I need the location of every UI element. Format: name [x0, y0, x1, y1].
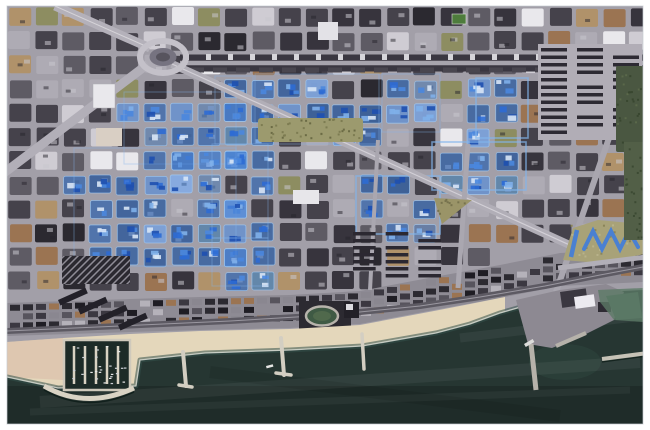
city-block [415, 33, 437, 51]
city-block [469, 224, 491, 242]
blue-roof [157, 129, 165, 134]
shore-building [543, 275, 553, 281]
courtyard [455, 91, 460, 94]
courtyard [66, 90, 71, 93]
city-block [172, 79, 194, 97]
blue-roof [149, 157, 154, 161]
courtyard [70, 251, 76, 255]
courtyard [338, 211, 343, 214]
blue-roof [152, 134, 158, 140]
shore-building [244, 307, 254, 313]
blue-roof [127, 226, 134, 232]
blue-roof [98, 229, 107, 232]
city-block [604, 9, 626, 27]
highlighted-block [199, 151, 221, 169]
shore-building [400, 293, 410, 299]
blue-roof [212, 178, 219, 181]
shore-building [504, 283, 514, 289]
blue-roof [261, 89, 267, 94]
courtyard [149, 83, 154, 86]
courtyard [391, 39, 396, 42]
blue-roof [504, 161, 509, 166]
city-block [36, 247, 58, 265]
city-block [62, 32, 84, 50]
city-block [332, 247, 354, 265]
city-block [37, 177, 59, 195]
courtyard [50, 236, 55, 239]
city-block [62, 79, 84, 97]
blue-roof [362, 179, 368, 184]
city-block [440, 81, 462, 99]
courtyard [206, 91, 212, 95]
photo-area [0, 6, 650, 424]
courtyard [346, 160, 351, 163]
document-page [0, 0, 650, 430]
blue-roof [101, 179, 107, 184]
blue-roof [471, 186, 479, 190]
shore-building [335, 294, 345, 300]
city-block [36, 105, 58, 123]
city-block [36, 80, 58, 98]
blue-roof [238, 108, 243, 112]
blue-roof [505, 88, 513, 93]
blue-roof [126, 185, 134, 190]
city-block [280, 223, 302, 241]
courtyard [610, 178, 615, 181]
courtyard [339, 258, 345, 262]
shore-building [426, 280, 436, 286]
shore-building [517, 281, 527, 287]
courtyard [282, 165, 288, 169]
city-block [35, 201, 57, 219]
blue-roof [102, 210, 107, 216]
blue-roof [183, 177, 188, 181]
shore-building [270, 297, 280, 303]
courtyard [585, 19, 590, 22]
courtyard [308, 228, 314, 232]
shore-building [153, 300, 163, 306]
city-block [198, 272, 220, 290]
courtyard [362, 158, 367, 161]
city-block [8, 201, 30, 219]
shore-building [361, 301, 371, 307]
shore-building [361, 292, 371, 298]
blue-roof [260, 113, 265, 118]
courtyard [504, 43, 509, 46]
blue-roof [496, 80, 501, 84]
blue-roof [200, 182, 206, 186]
blue-roof [469, 164, 475, 168]
city-block [361, 33, 383, 51]
city-block [413, 7, 435, 25]
shore-building [153, 309, 163, 315]
highlighted-block [468, 176, 490, 194]
blue-roof [417, 228, 422, 233]
highlighted-block [361, 175, 383, 193]
courtyard [174, 35, 180, 39]
courtyard [265, 17, 271, 21]
shore-building [244, 298, 254, 304]
blue-roof [453, 185, 459, 189]
city-block [333, 175, 355, 193]
city-block [279, 152, 301, 170]
city-block [10, 224, 32, 242]
courtyard [606, 163, 611, 166]
blue-roof [390, 82, 398, 88]
courtyard [474, 14, 480, 18]
city-block [8, 31, 30, 49]
blue-roof [206, 134, 213, 137]
city-block [467, 33, 489, 51]
courtyard [101, 68, 106, 71]
courtyard [237, 45, 243, 49]
courtyard [47, 228, 53, 232]
blue-roof [427, 106, 435, 110]
city-block [35, 31, 57, 49]
courtyard [176, 209, 182, 213]
blue-roof [389, 109, 394, 114]
shore-building [218, 298, 228, 304]
blue-roof [179, 136, 185, 139]
blue-roof [264, 82, 272, 86]
blue-roof [239, 276, 245, 281]
blue-roof [232, 81, 239, 86]
blue-roof [173, 156, 177, 161]
blue-roof [131, 208, 136, 212]
blue-roof [150, 182, 159, 185]
blue-roof [427, 85, 431, 91]
satellite-figure [0, 0, 650, 430]
city-block [35, 224, 57, 242]
blue-roof [505, 182, 513, 188]
city-block [334, 225, 356, 243]
blue-roof [256, 258, 260, 263]
blue-roof [97, 207, 104, 210]
shore-building [465, 272, 475, 278]
blue-roof [504, 80, 510, 83]
blue-roof [213, 250, 219, 256]
blue-roof [398, 87, 405, 91]
courtyard [288, 253, 294, 257]
courtyard [291, 214, 296, 217]
courtyard [77, 206, 82, 209]
shore-building [374, 289, 384, 295]
blue-roof [173, 232, 181, 238]
shore-building [166, 300, 176, 306]
shore-building [504, 274, 514, 280]
blue-roof [255, 251, 263, 256]
city-block [441, 104, 463, 122]
blue-roof [151, 251, 159, 255]
shore-building [439, 277, 449, 283]
city-block [332, 271, 354, 289]
blue-roof [394, 110, 399, 115]
shore-building [192, 308, 202, 314]
shore-building [400, 284, 410, 290]
courtyard [497, 17, 503, 21]
shore-building [257, 298, 267, 304]
blue-roof [204, 153, 208, 156]
blue-roof [124, 179, 131, 184]
courtyard [557, 211, 563, 215]
city-block [172, 7, 194, 25]
green-strip-2 [624, 142, 643, 240]
courtyard [619, 187, 625, 191]
blue-roof [236, 114, 241, 118]
highlighted-block [144, 152, 166, 170]
city-block [333, 152, 355, 170]
shore-building [49, 312, 59, 318]
shore-building [530, 269, 540, 275]
blue-roof [341, 108, 348, 113]
blue-roof [506, 155, 512, 160]
courtyard [178, 281, 184, 285]
blue-roof [317, 113, 325, 118]
blue-roof [399, 177, 405, 183]
city-block [305, 151, 327, 169]
courtyard [212, 13, 218, 17]
shore-building [23, 313, 33, 319]
blue-roof [239, 130, 245, 135]
blue-roof [475, 179, 482, 183]
courtyard [418, 156, 423, 159]
blue-roof [453, 162, 459, 166]
city-block [62, 153, 84, 171]
aerial-photo-city-coast [0, 0, 650, 430]
blue-roof [106, 251, 110, 255]
blue-roof [431, 94, 436, 97]
courtyard [372, 40, 377, 43]
shore-building [23, 304, 33, 310]
city-block [387, 8, 409, 26]
shore-building [478, 279, 488, 285]
blue-roof [478, 116, 486, 121]
courtyard [500, 132, 505, 135]
shore-building [283, 297, 293, 303]
courtyard [182, 213, 187, 216]
courtyard [20, 133, 25, 136]
city-block [89, 32, 111, 50]
blue-roof [206, 185, 213, 190]
courtyard [49, 62, 55, 66]
blue-roof [418, 88, 424, 93]
blue-roof [368, 206, 372, 211]
blue-roof [182, 114, 190, 120]
blue-roof [202, 252, 208, 256]
shore-building [231, 298, 241, 304]
shore-building [49, 303, 59, 309]
blue-roof [146, 258, 151, 263]
courtyard [391, 141, 396, 144]
shore-building [348, 293, 358, 299]
courtyard [20, 20, 25, 23]
city-block [576, 9, 598, 27]
blue-roof [180, 250, 188, 255]
city-block [89, 56, 111, 74]
courtyard [285, 19, 291, 23]
courtyard [311, 16, 316, 19]
city-block [252, 8, 274, 26]
shore-building [140, 301, 150, 307]
courtyard [345, 237, 350, 240]
city-block [171, 199, 193, 217]
city-block [279, 249, 301, 267]
courtyard [152, 276, 157, 279]
blue-roof [262, 226, 266, 231]
city-block [145, 8, 167, 26]
blue-roof [319, 91, 323, 94]
courtyard [401, 202, 407, 206]
courtyard [369, 21, 375, 25]
shore-building [426, 289, 436, 295]
white-roof-1 [93, 84, 115, 108]
beach-sand-pink [7, 338, 63, 380]
blue-roof [122, 250, 127, 255]
city-block [90, 151, 112, 169]
courtyard [22, 182, 27, 185]
highlighted-block [225, 200, 247, 218]
white-roof-3 [293, 190, 319, 204]
shore-building [413, 291, 423, 297]
shore-building [88, 311, 98, 317]
city-block [361, 79, 383, 97]
city-block [278, 272, 300, 290]
courtyard [346, 14, 352, 18]
courtyard [499, 44, 505, 48]
highlighted-block [145, 176, 167, 194]
blue-roof [396, 225, 401, 231]
city-block [305, 271, 327, 289]
city-block [387, 199, 409, 217]
courtyard [67, 202, 73, 206]
city-block [10, 80, 32, 98]
city-block [631, 8, 650, 26]
courtyard [101, 113, 106, 116]
courtyard [44, 86, 49, 89]
city-block [10, 177, 32, 195]
city-block [279, 8, 301, 26]
blue-roof [509, 161, 514, 166]
shore-building [283, 306, 293, 312]
courtyard [453, 113, 459, 117]
city-block [468, 248, 490, 266]
city-block [307, 248, 329, 266]
shore-building [465, 281, 475, 287]
blue-roof [259, 187, 265, 193]
city-block [9, 104, 31, 122]
blue-roof [423, 209, 430, 213]
market-roof [96, 128, 122, 146]
blue-roof [153, 233, 162, 237]
courtyard [22, 280, 27, 283]
groyne-3 [362, 334, 364, 369]
city-block [602, 199, 624, 217]
blue-roof [238, 258, 244, 262]
courtyard [148, 17, 154, 21]
blue-roof [293, 91, 298, 94]
blue-roof [286, 84, 290, 89]
city-block [522, 9, 544, 27]
blue-roof [204, 111, 212, 115]
courtyard [580, 166, 586, 170]
city-block [332, 81, 354, 99]
green-strip-1 [616, 66, 643, 152]
shore-building [387, 287, 397, 293]
blue-roof [426, 231, 433, 236]
blue-roof [255, 232, 261, 238]
blue-roof [312, 107, 320, 111]
city-block [494, 31, 516, 49]
courtyard [24, 60, 30, 64]
city-block [522, 200, 544, 218]
groyne-2-head [276, 373, 291, 375]
blue-roof [147, 112, 155, 117]
city-block [387, 129, 409, 147]
shore-building [179, 299, 189, 305]
shore-building [205, 299, 215, 305]
blue-roof [416, 106, 423, 111]
courtyard [290, 275, 296, 279]
shore-building [491, 268, 501, 274]
blue-roof [206, 234, 212, 238]
city-block [496, 225, 518, 243]
groyne-1-head [179, 385, 192, 387]
city-block [116, 152, 138, 170]
blue-roof [391, 183, 396, 186]
blue-roof [368, 116, 376, 120]
city-block [251, 199, 273, 217]
shore-building [192, 299, 202, 305]
blue-roof [132, 235, 138, 239]
courtyard [43, 164, 49, 168]
highlighted-block [224, 103, 246, 121]
courtyard [450, 38, 455, 41]
courtyard [319, 283, 325, 287]
shore-building [127, 310, 137, 316]
city-block [387, 32, 409, 50]
shore-building [517, 272, 527, 278]
courtyard [421, 45, 426, 48]
blue-roof [208, 129, 213, 132]
blue-roof [149, 203, 153, 209]
blue-roof [232, 260, 237, 263]
stadium-field [313, 311, 331, 321]
blue-roof [308, 87, 317, 91]
blue-roof [230, 131, 239, 136]
blue-roof [401, 106, 407, 112]
city-block [440, 128, 462, 146]
courtyard [284, 185, 290, 189]
blue-roof [400, 115, 407, 118]
shore-building [543, 266, 553, 272]
blue-roof [129, 106, 134, 110]
city-block [10, 248, 32, 266]
courtyard [43, 280, 48, 283]
courtyard [580, 36, 586, 40]
roundabout-core [156, 53, 170, 62]
courtyard [66, 67, 72, 71]
shore-building [439, 286, 449, 292]
blue-roof [234, 158, 242, 163]
courtyard [392, 202, 397, 205]
shore-building [478, 270, 488, 276]
shore-building [205, 308, 215, 314]
blue-roof [320, 106, 325, 110]
courtyard [158, 279, 164, 283]
courtyard [205, 37, 211, 41]
courtyard [616, 160, 622, 164]
courtyard [122, 18, 127, 21]
